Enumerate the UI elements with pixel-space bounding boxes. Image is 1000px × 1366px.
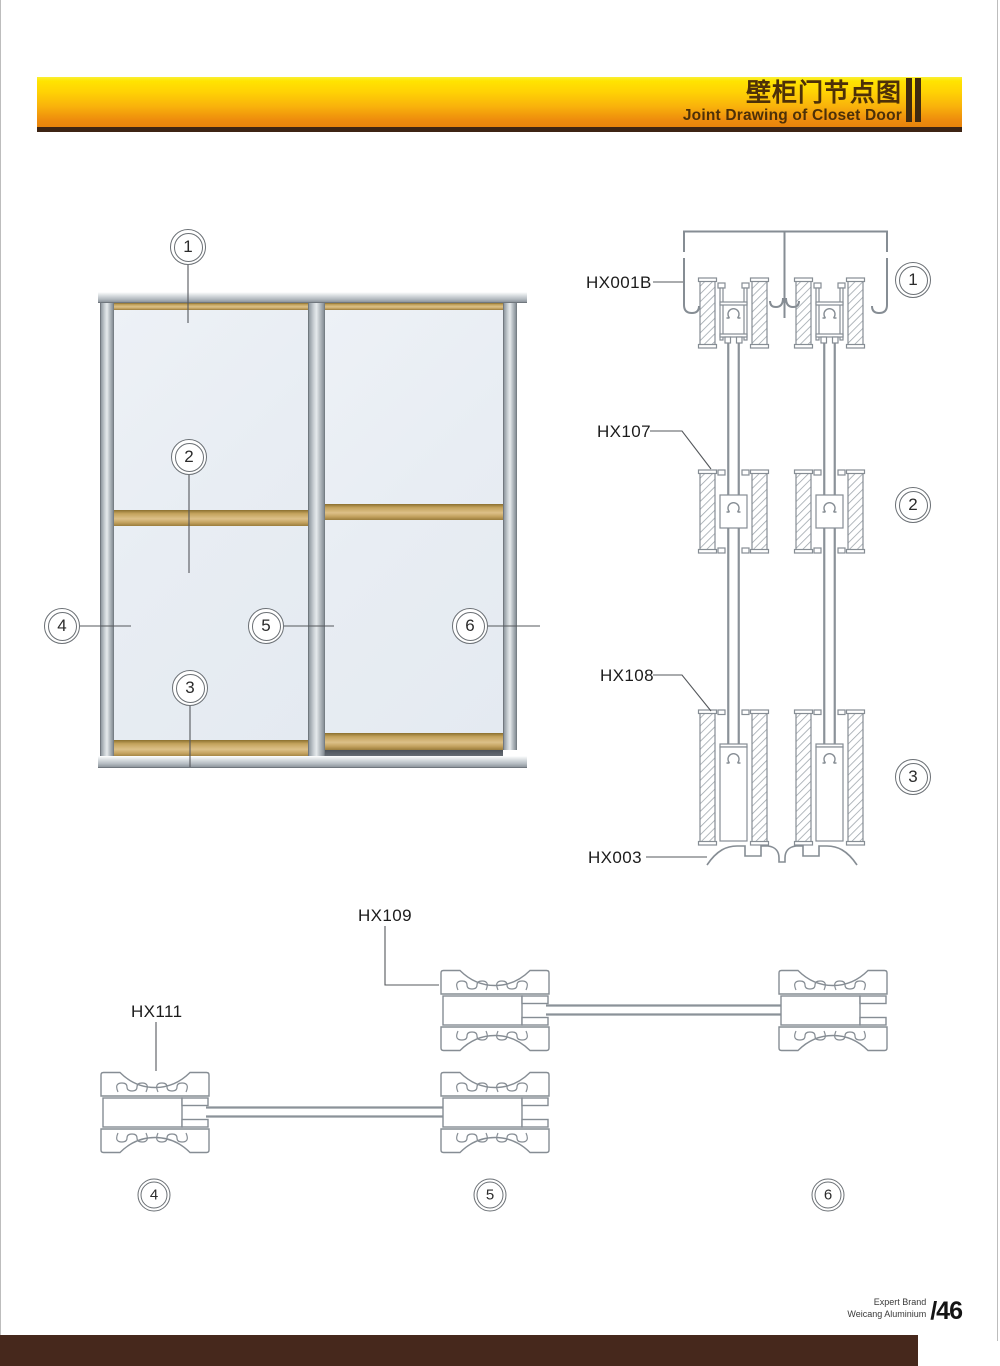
page-number: /46 <box>930 1301 962 1322</box>
floor-track-section <box>707 846 857 865</box>
label-hx108: HX108 <box>600 666 654 686</box>
callout-section-3: 3 <box>895 759 931 795</box>
page: 壁柜门节点图 Joint Drawing of Closet Door <box>0 0 1000 1366</box>
brand-line-2: Weicang Aluminium <box>847 1309 926 1321</box>
plan-row-upper <box>441 971 887 1051</box>
label-hx107: HX107 <box>597 422 651 442</box>
label-hx111: HX111 <box>131 1002 182 1022</box>
label-hx003: HX003 <box>588 848 642 868</box>
callout-plan-6: 6 <box>812 1179 845 1212</box>
sections-drawing <box>0 0 1000 1366</box>
label-hx001b: HX001B <box>586 273 652 293</box>
callout-elevation-6: 6 <box>452 608 488 644</box>
callout-elevation-3: 3 <box>172 670 208 706</box>
footer-bar <box>0 1335 918 1366</box>
footer-info: Expert Brand Weicang Aluminium /46 <box>847 1297 962 1322</box>
brand-line-1: Expert Brand <box>847 1297 926 1309</box>
callout-elevation-2: 2 <box>171 439 207 475</box>
callout-section-1: 1 <box>895 262 931 298</box>
section-glass-vertical <box>728 340 835 744</box>
brand-text: Expert Brand Weicang Aluminium <box>847 1297 926 1322</box>
callout-plan-4: 4 <box>138 1179 171 1212</box>
callout-elevation-4: 4 <box>44 608 80 644</box>
detail-1-section <box>699 278 865 348</box>
callout-elevation-5: 5 <box>248 608 284 644</box>
detail-3-section <box>699 710 865 845</box>
plan-row-lower <box>101 1073 549 1153</box>
callout-plan-5: 5 <box>474 1179 507 1212</box>
callout-elevation-1: 1 <box>170 229 206 265</box>
callout-section-2: 2 <box>895 487 931 523</box>
label-hx109: HX109 <box>358 906 412 926</box>
detail-2-section <box>699 470 865 553</box>
